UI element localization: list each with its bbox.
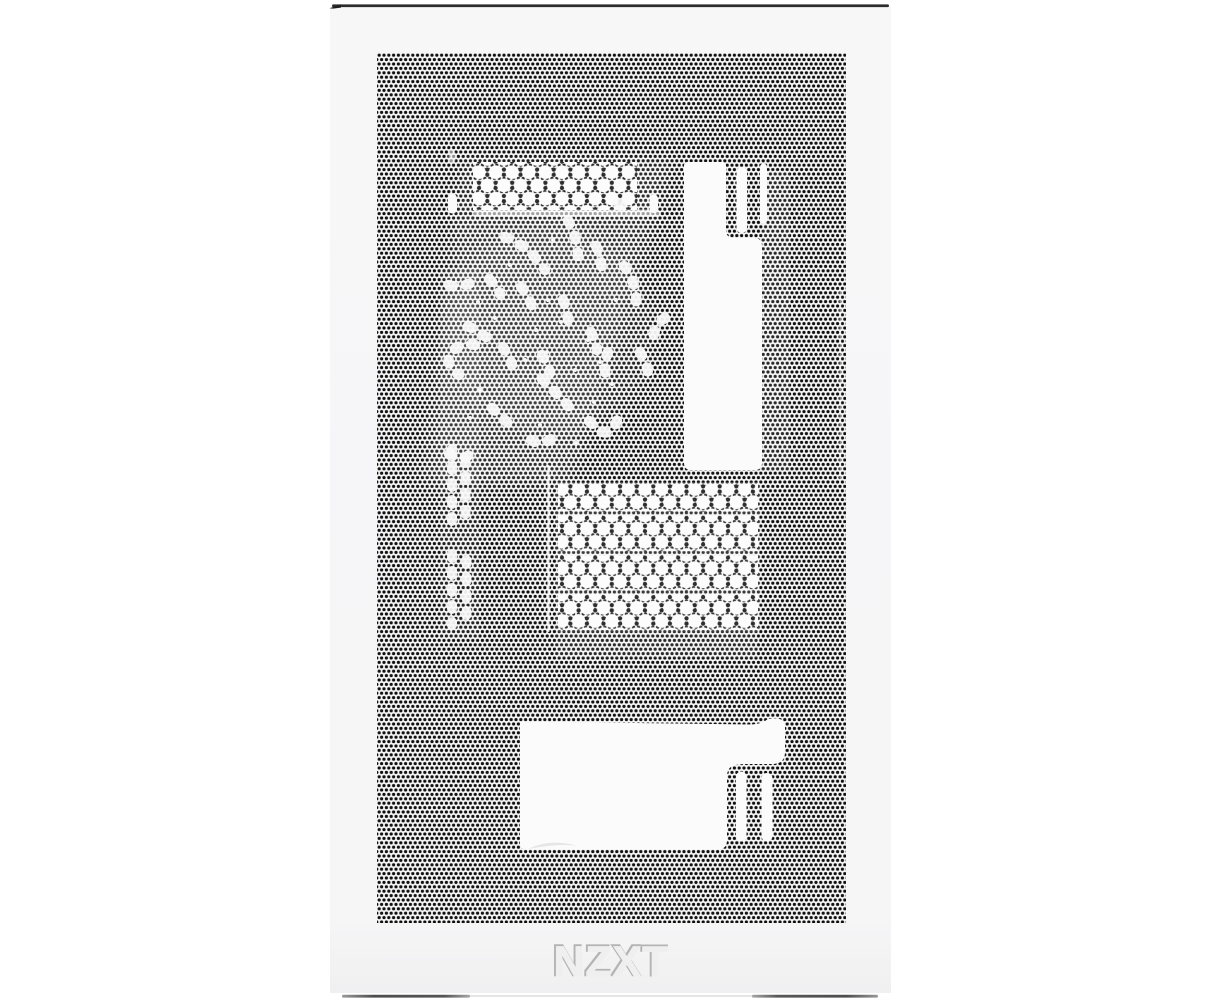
svg-text:NZXT: NZXT — [554, 939, 670, 986]
